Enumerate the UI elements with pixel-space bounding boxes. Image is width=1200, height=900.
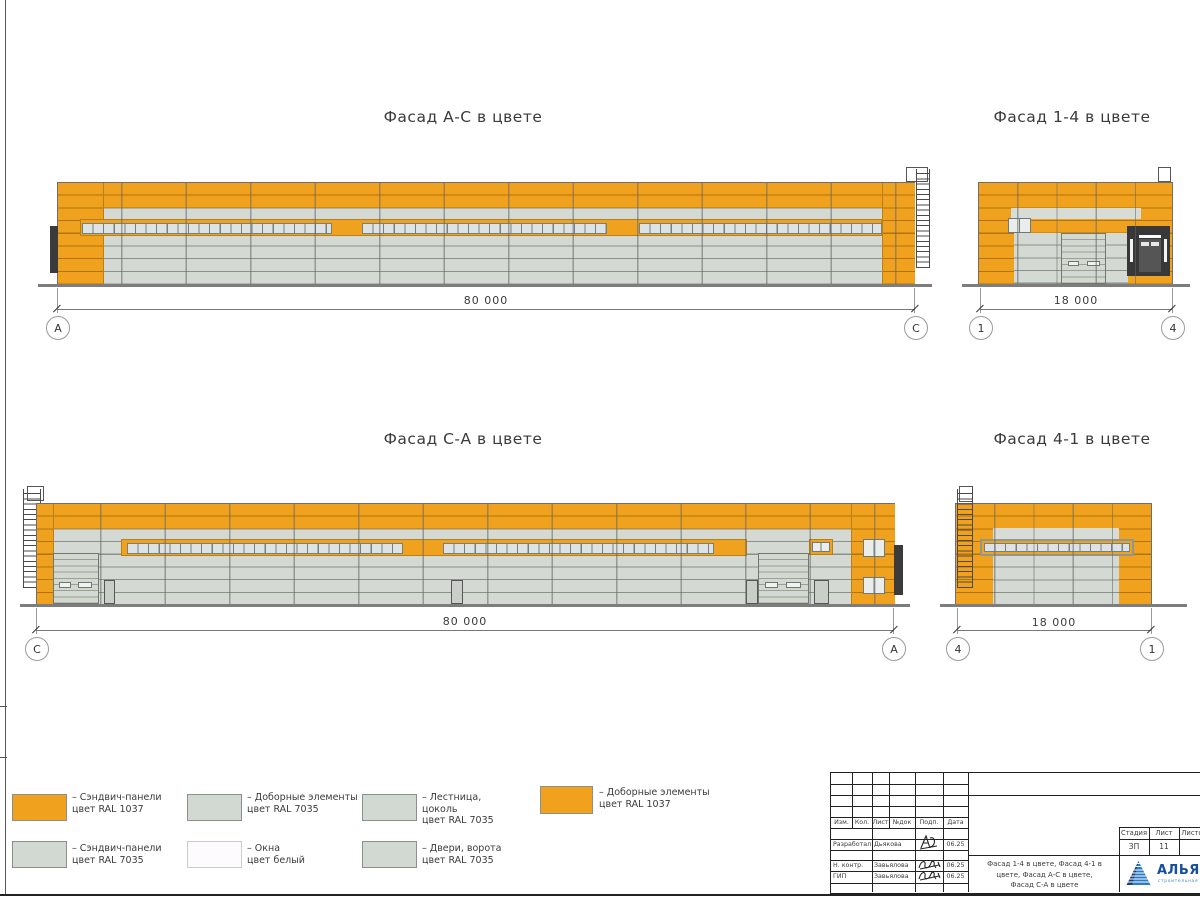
facade-ca xyxy=(36,503,895,605)
panel-joints-overlay xyxy=(37,504,894,604)
dock-shelter-side xyxy=(50,226,58,273)
legend-swatch xyxy=(187,841,242,868)
legend-label: – Доборные элементы цвет RAL 1037 xyxy=(599,787,729,810)
tb-name: Завьялова xyxy=(874,873,909,880)
signature xyxy=(917,833,941,851)
roof-ladder xyxy=(916,169,930,268)
ground-line xyxy=(20,604,910,607)
axis-marker-c: С xyxy=(904,316,928,340)
legend-label: – Сэндвич-панели цвет RAL 1037 xyxy=(72,792,192,815)
legend-swatch xyxy=(540,786,593,814)
tb-role: Н. контр. xyxy=(833,862,863,869)
axis-marker-a: А xyxy=(882,637,906,661)
legend-swatch xyxy=(12,794,67,821)
company-name: АЛЬЯНС xyxy=(1157,863,1200,878)
tb-name: Завьялова xyxy=(874,862,909,869)
tb-header-podp: Подп. xyxy=(915,819,943,826)
dimension-text: 80 000 xyxy=(57,294,915,307)
legend-label: – Доборные элементы цвет RAL 7035 xyxy=(247,792,377,815)
tb-sheets-value: 1 xyxy=(1191,843,1200,850)
tb-sheets-label: Листов xyxy=(1179,830,1200,837)
tb-role: Разработал xyxy=(833,841,871,848)
view-title-14: Фасад 1-4 в цвете xyxy=(977,108,1167,126)
legend-label: – Лестница, цоколь цвет RAL 7035 xyxy=(422,792,532,827)
fold-mark xyxy=(0,706,7,707)
axis-marker-1: 1 xyxy=(1140,637,1164,661)
tb-date: 06.25 xyxy=(943,862,968,869)
tb-date: 06.25 xyxy=(943,841,968,848)
axis-marker-4: 4 xyxy=(1161,316,1185,340)
tb-header-list: Лист xyxy=(872,819,889,826)
dimension-line xyxy=(957,630,1151,631)
tb-sheet-value: 11 xyxy=(1149,843,1179,850)
facade-14 xyxy=(978,182,1173,285)
dimension-text: 18 000 xyxy=(957,616,1151,629)
tb-header-ndok: №док xyxy=(889,819,915,826)
dimension-line xyxy=(36,630,894,631)
tb-header-data: Дата xyxy=(943,819,968,826)
facade-ac xyxy=(57,182,915,285)
tb-stage-label: Стадия xyxy=(1119,830,1149,837)
legend-swatch xyxy=(187,794,242,821)
ground-line xyxy=(38,284,932,287)
panel-joints-overlay xyxy=(58,183,914,284)
dimension-line xyxy=(57,309,915,310)
dimension-line xyxy=(980,309,1172,310)
roof-ladder xyxy=(957,489,973,588)
signature xyxy=(917,870,943,882)
ground-line xyxy=(962,284,1190,287)
company-subtitle: строительная компания xyxy=(1158,879,1200,884)
tb-stage-value: ЗП xyxy=(1119,843,1149,850)
panel-joints-overlay xyxy=(979,183,1172,284)
sheet-frame-bottom xyxy=(0,894,1200,897)
legend-swatch xyxy=(12,841,67,868)
tb-doc-title: Фасад 1-4 в цвете, Фасад 4-1 в цвете, Фа… xyxy=(970,859,1119,891)
legend-swatch xyxy=(362,841,417,868)
dimension-text: 18 000 xyxy=(980,294,1172,307)
view-title-ca: Фасад С-А в цвете xyxy=(283,430,643,448)
legend-label: – Двери, ворота цвет RAL 7035 xyxy=(422,843,542,866)
facade-41 xyxy=(955,503,1152,605)
logo-pyramid-icon xyxy=(1126,861,1151,886)
company-logo: АЛЬЯНС строительная компания xyxy=(1119,855,1200,892)
legend-label: – Сэндвич-панели цвет RAL 7035 xyxy=(72,843,192,866)
title-block: Изм. Кол. Лист №док Подп. Дата Разработа… xyxy=(830,772,1200,894)
drawing-sheet: Фасад А-С в цвете Фасад 1-4 в цвете Фаса… xyxy=(0,0,1200,900)
panel-joints-overlay xyxy=(956,504,1151,604)
view-title-41: Фасад 4-1 в цвете xyxy=(977,430,1167,448)
tb-sheet-label: Лист xyxy=(1149,830,1179,837)
sheet-frame-left xyxy=(5,0,6,895)
dimension-text: 80 000 xyxy=(36,615,894,628)
view-title-ac: Фасад А-С в цвете xyxy=(283,108,643,126)
axis-marker-a: А xyxy=(46,316,70,340)
fold-mark xyxy=(0,757,7,758)
dock-shelter-side xyxy=(894,545,903,595)
axis-marker-1: 1 xyxy=(969,316,993,340)
axis-marker-4: 4 xyxy=(946,637,970,661)
roof-hatch-box xyxy=(1158,167,1171,182)
tb-role: ГИП xyxy=(833,873,846,880)
tb-name: Дьякова xyxy=(874,841,902,848)
tb-header-kol: Кол. xyxy=(852,819,872,826)
ground-line xyxy=(940,604,1187,607)
tb-date: 06.25 xyxy=(943,873,968,880)
legend-swatch xyxy=(362,794,417,821)
axis-marker-c: С xyxy=(25,637,49,661)
tb-header-izm: Изм. xyxy=(831,819,852,826)
legend-label: – Окна цвет белый xyxy=(247,843,357,866)
